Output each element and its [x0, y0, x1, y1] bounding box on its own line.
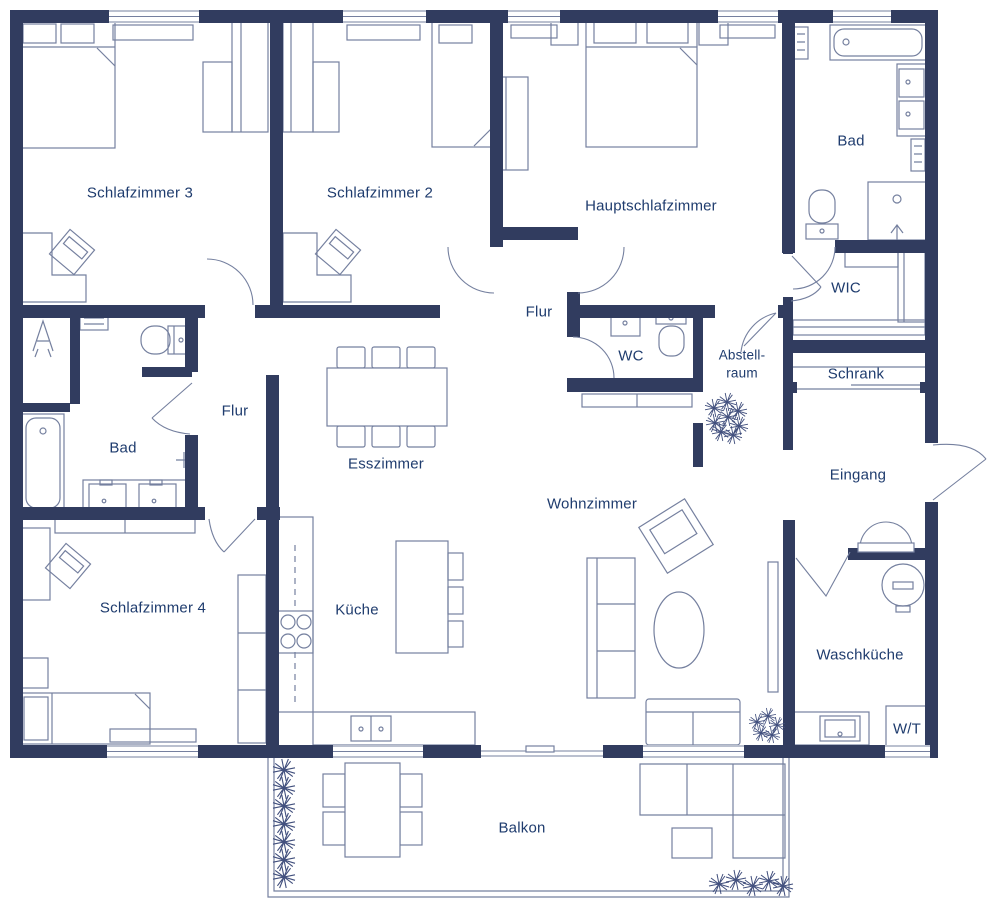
pillow-icon: [647, 22, 688, 43]
furniture-hauptschlafzimmer: [498, 18, 728, 170]
bathtub-icon: [22, 414, 64, 512]
chair-icon: [337, 426, 365, 447]
outdoor-table-icon: [345, 763, 400, 857]
plant-icon: [273, 795, 295, 817]
chair-icon: [323, 774, 345, 807]
room-label-waschkueche: Waschküche: [816, 645, 903, 665]
door-arc-schlafzimmer-2: [448, 247, 494, 293]
nightstand-icon: [20, 658, 48, 688]
door-arc-wic: [791, 256, 821, 301]
window-sill: [347, 25, 420, 40]
furniture-esszimmer: [327, 347, 447, 447]
room-label-balkon: Balkon: [498, 818, 545, 838]
entrance-opening: [925, 443, 938, 502]
drain-icon: [843, 39, 849, 45]
room-label-flur-links: Flur: [222, 401, 249, 421]
room-label-waschtrockner: W/T: [893, 719, 921, 739]
barstool-icon: [448, 621, 463, 647]
room-label-hauptschlafzimmer: Hauptschlafzimmer: [585, 196, 717, 216]
furniture-schlafzimmer-2: [283, 18, 491, 302]
desk-icon: [22, 528, 50, 600]
side-table-icon: [672, 828, 712, 858]
bed-icon: [432, 20, 491, 147]
wardrobe-icon: [238, 575, 266, 743]
kitchen-counter-icon: [313, 712, 475, 745]
chair-icon: [49, 229, 94, 274]
bathtub-icon: [830, 25, 926, 60]
door-waschkueche-open: [796, 552, 850, 596]
wardrobe-icon: [232, 18, 268, 132]
plant-icon: [273, 759, 295, 781]
drain-icon: [40, 428, 46, 434]
sink-icon: [89, 484, 126, 509]
armchair-icon: [639, 499, 713, 573]
blanket-fold-icon: [680, 48, 697, 65]
room-label-wohnzimmer: Wohnzimmer: [547, 494, 637, 514]
plant-icon: [712, 423, 730, 441]
laundry-counter-icon: [793, 712, 869, 745]
window-sill: [113, 25, 193, 40]
blanket-fold-icon: [97, 48, 115, 66]
kitchen-island-icon: [396, 541, 448, 653]
door-arc-schlafzimmer-4: [209, 519, 255, 552]
chair-icon: [337, 347, 365, 368]
furniture-balkon: [323, 763, 785, 858]
window-sill: [511, 25, 557, 38]
window-icon: [885, 745, 930, 758]
toilet-icon: [806, 224, 838, 239]
room-label-wic: WIC: [831, 278, 861, 298]
tv-board-icon: [768, 562, 778, 692]
room-label-schlafzimmer-3: Schlafzimmer 3: [87, 183, 193, 203]
wardrobe-icon: [203, 62, 232, 132]
plant-icon: [273, 831, 295, 853]
sink-icon: [899, 101, 924, 129]
blanket-fold-icon: [474, 129, 491, 146]
bed-icon: [20, 693, 150, 744]
plant-icon: [718, 393, 736, 411]
wardrobe-icon: [313, 62, 339, 132]
floor-plan: Schlafzimmer 3 Schlafzimmer 2 Hauptschla…: [0, 0, 1000, 902]
windows: [107, 10, 930, 758]
chair-icon: [45, 543, 90, 588]
furniture-schlafzimmer-3: [18, 18, 268, 302]
window-icon: [333, 745, 423, 758]
bookshelf-icon: [587, 558, 635, 698]
vanity-counter-icon: [897, 64, 926, 136]
chair-icon: [400, 812, 422, 845]
kitchen-counter-icon: [275, 517, 313, 712]
drying-rack-icon: [33, 321, 53, 357]
room-label-bad-links: Bad: [109, 438, 136, 458]
chair-icon: [407, 426, 435, 447]
walls: [10, 10, 938, 758]
room-label-flur-mitte: Flur: [526, 302, 553, 322]
room-label-schlafzimmer-2: Schlafzimmer 2: [327, 183, 433, 203]
window-sill: [110, 729, 196, 742]
door-arc-wc: [573, 337, 614, 378]
room-label-bad-oben: Bad: [837, 131, 864, 151]
door-arc-hauptschlafzimmer: [578, 247, 624, 293]
door-arc-bad-oben: [793, 247, 835, 289]
shower-arrow-icon: [891, 225, 903, 240]
wardrobe-icon: [283, 18, 313, 132]
door-arc-bad-links: [152, 383, 192, 434]
plant-icon: [743, 876, 763, 896]
pillow-icon: [24, 697, 48, 740]
pillow-icon: [23, 24, 56, 43]
window-icon: [343, 10, 426, 23]
desk-icon: [283, 233, 351, 302]
plant-icon: [749, 714, 765, 730]
rug-icon: [654, 592, 704, 668]
chair-icon: [372, 347, 400, 368]
plant-icon: [273, 777, 295, 799]
towel-rail-icon: [794, 27, 808, 59]
bed-icon: [18, 20, 115, 148]
sliding-door-icon: [481, 746, 603, 756]
chair-icon: [372, 426, 400, 447]
room-label-schrank: Schrank: [828, 364, 884, 384]
double-bed-icon: [586, 18, 697, 147]
entrance-door-arc: [933, 444, 986, 500]
plant-icon: [760, 708, 776, 724]
door-arc-schlafzimmer-3: [207, 259, 253, 305]
barstool-icon: [448, 587, 463, 614]
chair-icon: [323, 812, 345, 845]
plant-icon: [273, 849, 295, 871]
blanket-fold-icon: [135, 694, 150, 709]
door-threshold: [858, 543, 914, 552]
room-label-eingang: Eingang: [830, 465, 886, 485]
sink-icon: [899, 69, 924, 97]
pillow-icon: [61, 24, 94, 43]
water-heater-icon: [882, 564, 924, 606]
closet-icon: [898, 250, 925, 322]
window-icon: [508, 10, 560, 23]
chair-icon: [315, 229, 360, 274]
room-label-esszimmer: Esszimmer: [348, 454, 424, 474]
furniture-wohnzimmer: [587, 499, 778, 745]
plant-icon: [273, 866, 295, 888]
plant-icon: [273, 813, 295, 835]
plant-icon: [729, 402, 747, 420]
room-label-abstellraum: Abstell- raum: [719, 346, 766, 381]
pillow-icon: [439, 25, 472, 43]
window-icon: [718, 10, 778, 23]
furniture-kueche: [275, 517, 475, 745]
chair-icon: [407, 347, 435, 368]
window-icon: [107, 745, 198, 758]
chair-icon: [400, 774, 422, 807]
towel-rail-icon: [911, 139, 925, 171]
window-icon: [109, 10, 199, 23]
pillow-icon: [594, 22, 636, 43]
furniture-schlafzimmer-4: [20, 519, 266, 744]
furniture-flur-vestibule: [582, 394, 692, 407]
sink-icon: [139, 484, 176, 509]
desk-icon: [18, 233, 86, 302]
plant-icon: [706, 414, 724, 432]
room-label-kueche: Küche: [335, 600, 379, 620]
dining-table-icon: [327, 368, 447, 426]
barstool-icon: [448, 553, 463, 580]
window-icon: [833, 10, 891, 23]
room-label-schlafzimmer-4: Schlafzimmer 4: [100, 598, 206, 618]
room-label-wc: WC: [618, 346, 643, 366]
window-icon: [643, 745, 744, 758]
